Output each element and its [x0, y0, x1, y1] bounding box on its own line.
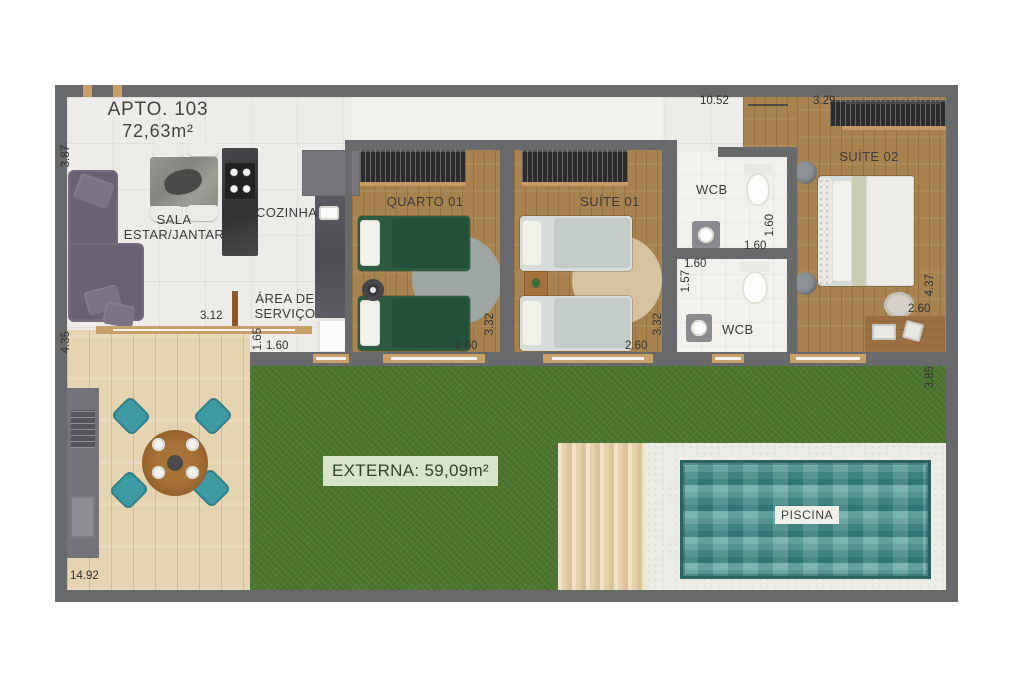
apartment-title: APTO. 103	[98, 99, 218, 121]
headboard	[818, 178, 832, 284]
wcb-top-wall	[718, 147, 787, 157]
entry-door-jamb-left	[83, 85, 92, 97]
dim-suite01-width: 2.60	[625, 340, 647, 352]
kitchen-sink	[319, 206, 339, 220]
sala-label: SALA ESTAR/JANTAR	[118, 212, 230, 242]
laundry-tub	[317, 318, 348, 354]
suite01-bed-1	[520, 216, 632, 271]
quarto01-bed-1	[358, 216, 470, 271]
floor-plan: PISCINA	[0, 0, 1024, 682]
wcb-top-sink	[692, 221, 720, 249]
plan-title-block: APTO. 103 72,63m²	[98, 99, 218, 142]
dim-suite01-depth: 3.32	[652, 313, 664, 335]
pillow	[832, 180, 852, 282]
dim-suite02-width-bottom: 2.60	[908, 303, 930, 315]
blanket	[554, 298, 630, 348]
dim-servico-width: 1.60	[266, 340, 288, 352]
suite02-window	[790, 354, 866, 363]
toilet-bowl	[742, 271, 768, 304]
plate	[152, 466, 165, 479]
externa-label: EXTERNA: 59,09m²	[323, 456, 498, 486]
wcb-top-label: WCB	[696, 182, 728, 197]
quarto01-bed-2	[358, 296, 470, 351]
plate	[186, 438, 199, 451]
plate	[186, 466, 199, 479]
servico-window	[313, 354, 349, 363]
outer-wall-right	[946, 85, 958, 602]
wcb-bottom-sink	[686, 314, 712, 342]
wcb-bottom-toilet	[740, 262, 770, 304]
pillow	[360, 300, 380, 346]
dim-suite02-depth: 4.37	[924, 274, 936, 296]
wall-quarto01-suite01	[500, 140, 514, 352]
dim-wcb-bottom-height: 1.57	[680, 270, 692, 292]
dim-top-width-main: 10.52	[700, 95, 729, 107]
dim-wcb-top-height: 1.60	[764, 214, 776, 236]
dim-sala-width: 3.12	[200, 310, 222, 322]
apartment-area: 72,63m²	[98, 121, 218, 142]
setback-strip	[352, 97, 662, 142]
toilet-bowl	[746, 173, 770, 206]
dim-sala-height: 3.87	[60, 145, 72, 167]
outer-wall-bottom	[55, 590, 958, 602]
wcb-window	[712, 354, 744, 363]
quarto01-side-table	[362, 279, 384, 301]
sala-sliding-door	[96, 326, 312, 334]
cozinha-label: COZINHA	[256, 205, 317, 220]
blanket	[554, 218, 630, 268]
quarto01-wardrobe-shelf	[360, 182, 466, 186]
suite01-nightstand	[524, 271, 548, 296]
quarto01-label: QUARTO 01	[383, 194, 467, 209]
suite02-double-bed	[818, 176, 914, 286]
dim-bottom-width: 14.92	[70, 570, 99, 582]
suite02-pouf-2	[794, 272, 817, 295]
suite01-bed-2	[520, 296, 632, 351]
bbq-cabinet	[70, 496, 95, 538]
pool-label: PISCINA	[775, 506, 839, 524]
dim-wcb-top-width: 1.60	[744, 240, 766, 252]
pool: PISCINA	[680, 460, 931, 579]
suite01-wardrobe	[522, 150, 628, 182]
wall-wcb-suite02	[787, 147, 797, 354]
dim-quarto01-width: 2.60	[455, 340, 477, 352]
dim-extension-line	[845, 102, 941, 104]
dim-extension-line	[748, 104, 788, 106]
pillow	[360, 220, 380, 266]
entry-door-jamb-right	[113, 85, 122, 97]
duvet	[866, 176, 914, 286]
bedrooms-top-wall	[345, 140, 677, 150]
cooktop	[225, 163, 255, 199]
suite01-label: SUÍTE 01	[568, 194, 652, 209]
dim-deck-height: 4.35	[60, 331, 72, 353]
dim-servico-height: 1.65	[252, 328, 264, 350]
wall-kitchen-quarto01	[345, 140, 352, 366]
servico-label: ÁREA DE SERVIÇO	[250, 291, 320, 321]
dining-chair	[188, 141, 218, 156]
pool-wood-deck	[558, 443, 645, 590]
suite01-window	[543, 354, 653, 363]
pillow	[522, 220, 542, 266]
dim-quarto01-depth: 3.32	[484, 313, 496, 335]
suite02-wardrobe-shelf	[842, 126, 946, 130]
dining-chair	[153, 142, 183, 157]
plate	[152, 438, 165, 451]
suite02-label: SUÍTE 02	[830, 149, 908, 164]
dim-wcb-bottom-width: 1.60	[684, 258, 706, 270]
dim-garden-right-height: 3.85	[924, 366, 936, 388]
pillow	[522, 300, 542, 346]
blanket	[392, 218, 468, 268]
quarto01-wardrobe	[360, 150, 466, 182]
laptop	[872, 324, 896, 340]
grill	[71, 410, 95, 448]
quarto01-window	[383, 354, 485, 363]
dim-top-width-suite02: 3.29	[813, 95, 835, 107]
suite01-wardrobe-shelf	[522, 182, 628, 186]
wcb-bottom-label: WCB	[722, 322, 754, 337]
suite02-pouf-1	[794, 161, 817, 184]
wall-suite01-wcb	[662, 140, 677, 352]
wcb-top-toilet	[744, 164, 772, 206]
